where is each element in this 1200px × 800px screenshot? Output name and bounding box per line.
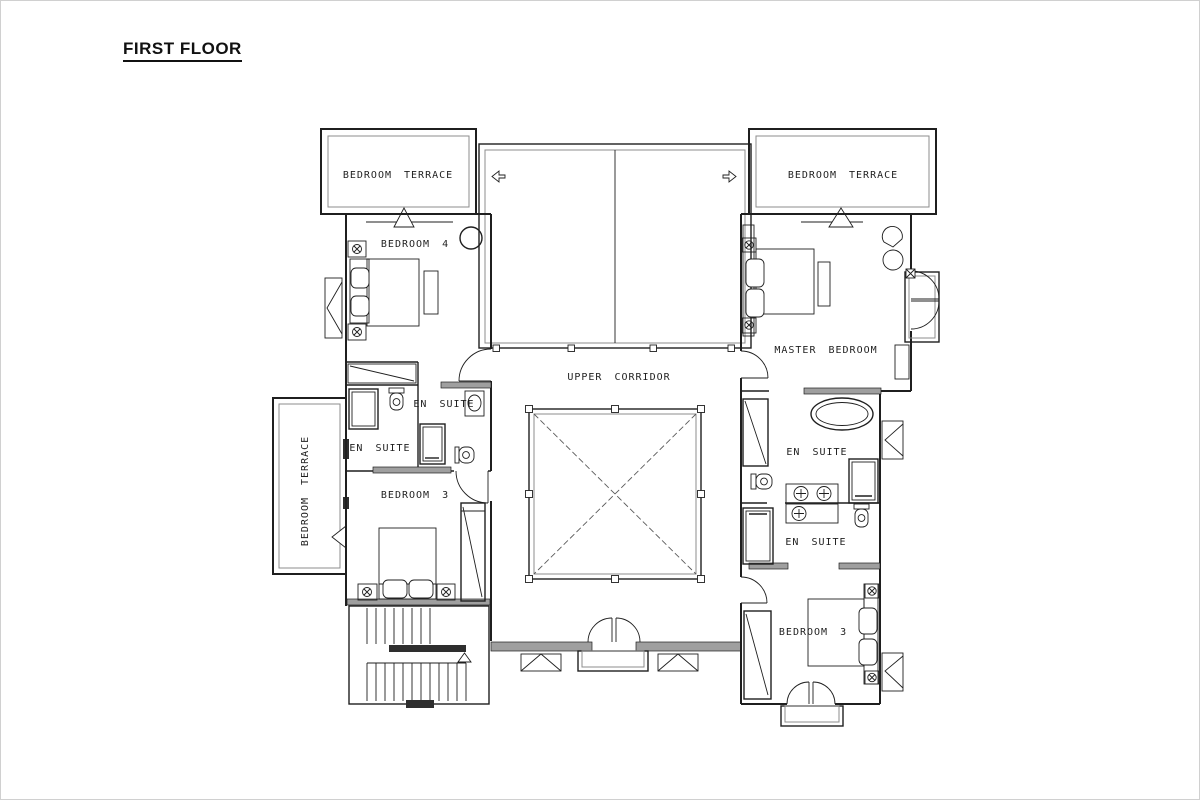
vanity xyxy=(786,504,838,523)
double-door-arc xyxy=(616,618,640,642)
roof-area xyxy=(479,144,751,352)
label-bedroom-3-right: BEDROOM 3 xyxy=(779,627,847,638)
pillow xyxy=(746,289,764,317)
pillow xyxy=(859,608,877,634)
label-terrace-top-left: BEDROOM TERRACE xyxy=(343,170,453,181)
door-swing-icon xyxy=(332,526,346,548)
pillow xyxy=(746,259,764,287)
chair xyxy=(882,226,902,247)
label-bedroom-3-left: BEDROOM 3 xyxy=(381,490,449,501)
stair-direction-arrow-icon xyxy=(458,653,471,662)
pillow xyxy=(409,580,433,598)
side-table xyxy=(883,250,903,270)
slope-arrow-left-icon xyxy=(492,171,505,182)
label-terrace-top-right: BEDROOM TERRACE xyxy=(788,170,898,181)
floor-plan-canvas: BEDROOM TERRACE BEDROOM TERRACE BEDROOM … xyxy=(1,1,1200,800)
pillow xyxy=(351,268,369,288)
label-en-suite-master: EN SUITE xyxy=(786,447,847,458)
terrace-side-left xyxy=(273,398,349,574)
planter xyxy=(521,654,561,671)
double-door-arc xyxy=(588,618,612,642)
toilet-icon xyxy=(389,388,404,393)
bench xyxy=(818,262,830,306)
toilet-icon xyxy=(854,504,869,509)
wardrobe xyxy=(461,503,485,601)
label-en-suite-b4-inner: EN SUITE xyxy=(413,399,474,410)
bed xyxy=(367,259,419,326)
label-upper-corridor: UPPER CORRIDOR xyxy=(567,372,670,383)
bench xyxy=(424,271,438,314)
door-arc-bedroom4 xyxy=(459,349,491,381)
label-master-bedroom: MASTER BEDROOM xyxy=(774,345,877,356)
stair-landing-edge xyxy=(389,645,466,652)
toilet-icon xyxy=(751,474,756,489)
entry-step xyxy=(578,651,648,671)
double-door-arc xyxy=(787,682,809,704)
pillow xyxy=(383,580,407,598)
bed xyxy=(756,249,814,314)
stair-treads-lower xyxy=(367,663,466,701)
bench xyxy=(895,345,909,379)
staircase xyxy=(349,606,489,708)
pillow xyxy=(859,639,877,665)
label-terrace-side-left: BEDROOM TERRACE xyxy=(300,436,311,546)
door-arc-bedroom3-right xyxy=(741,577,767,603)
door-arc-bedroom3-left xyxy=(456,471,488,503)
bedroom-3-left-furniture xyxy=(358,503,485,601)
slope-arrow-right-icon xyxy=(723,171,736,182)
door-swing-icon xyxy=(829,208,853,227)
upper-corridor xyxy=(491,406,741,672)
toilet-icon xyxy=(455,447,459,463)
floor-plan-page: FIRST FLOOR xyxy=(0,0,1200,800)
bath xyxy=(349,389,378,429)
label-en-suite-b4-outer: EN SUITE xyxy=(349,443,410,454)
bed xyxy=(379,528,436,584)
planter xyxy=(658,654,698,671)
door-arc-master xyxy=(741,351,768,378)
stair-treads-upper xyxy=(367,608,430,644)
double-door-arc xyxy=(813,682,835,704)
right-ensuite-fixtures xyxy=(743,504,869,564)
shower xyxy=(743,508,773,564)
entry-step xyxy=(781,706,843,726)
door-swing-icon xyxy=(394,208,414,227)
label-en-suite-b3-right: EN SUITE xyxy=(785,537,846,548)
label-bedroom-4: BEDROOM 4 xyxy=(381,239,449,250)
pillow xyxy=(351,296,369,316)
